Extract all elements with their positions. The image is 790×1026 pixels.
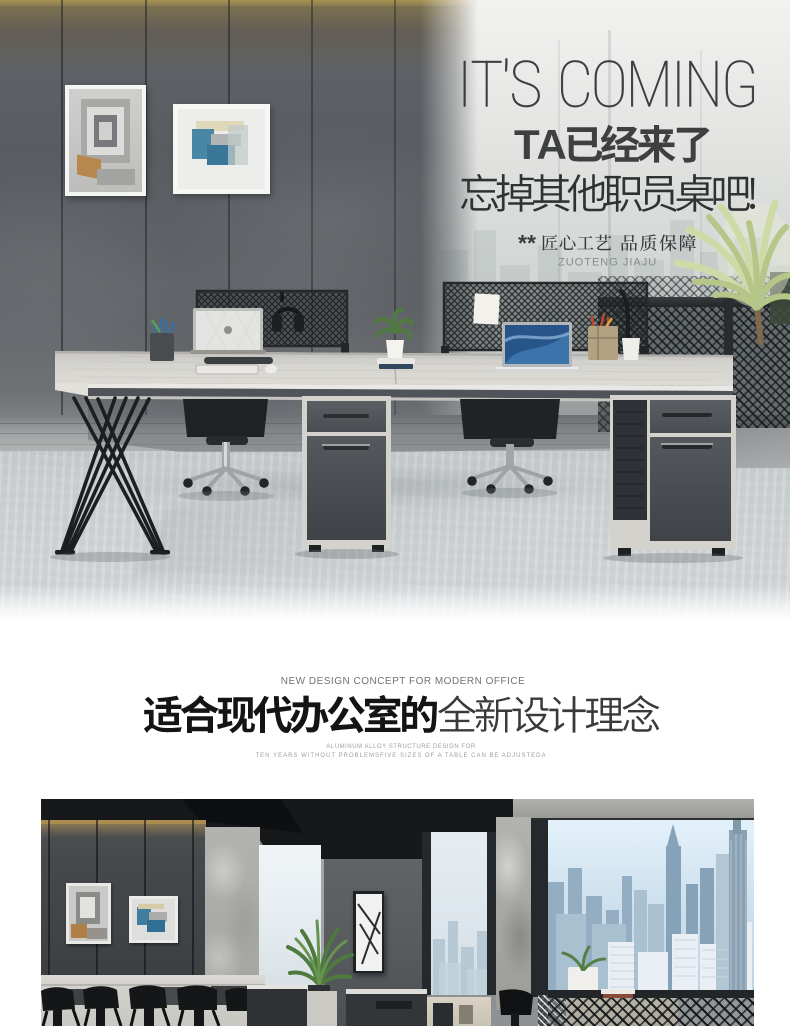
svg-text:ZUOTENG JIAJU: ZUOTENG JIAJU — [558, 257, 657, 269]
svg-text:**: ** — [518, 230, 536, 256]
svg-text:TA: TA — [514, 121, 567, 168]
